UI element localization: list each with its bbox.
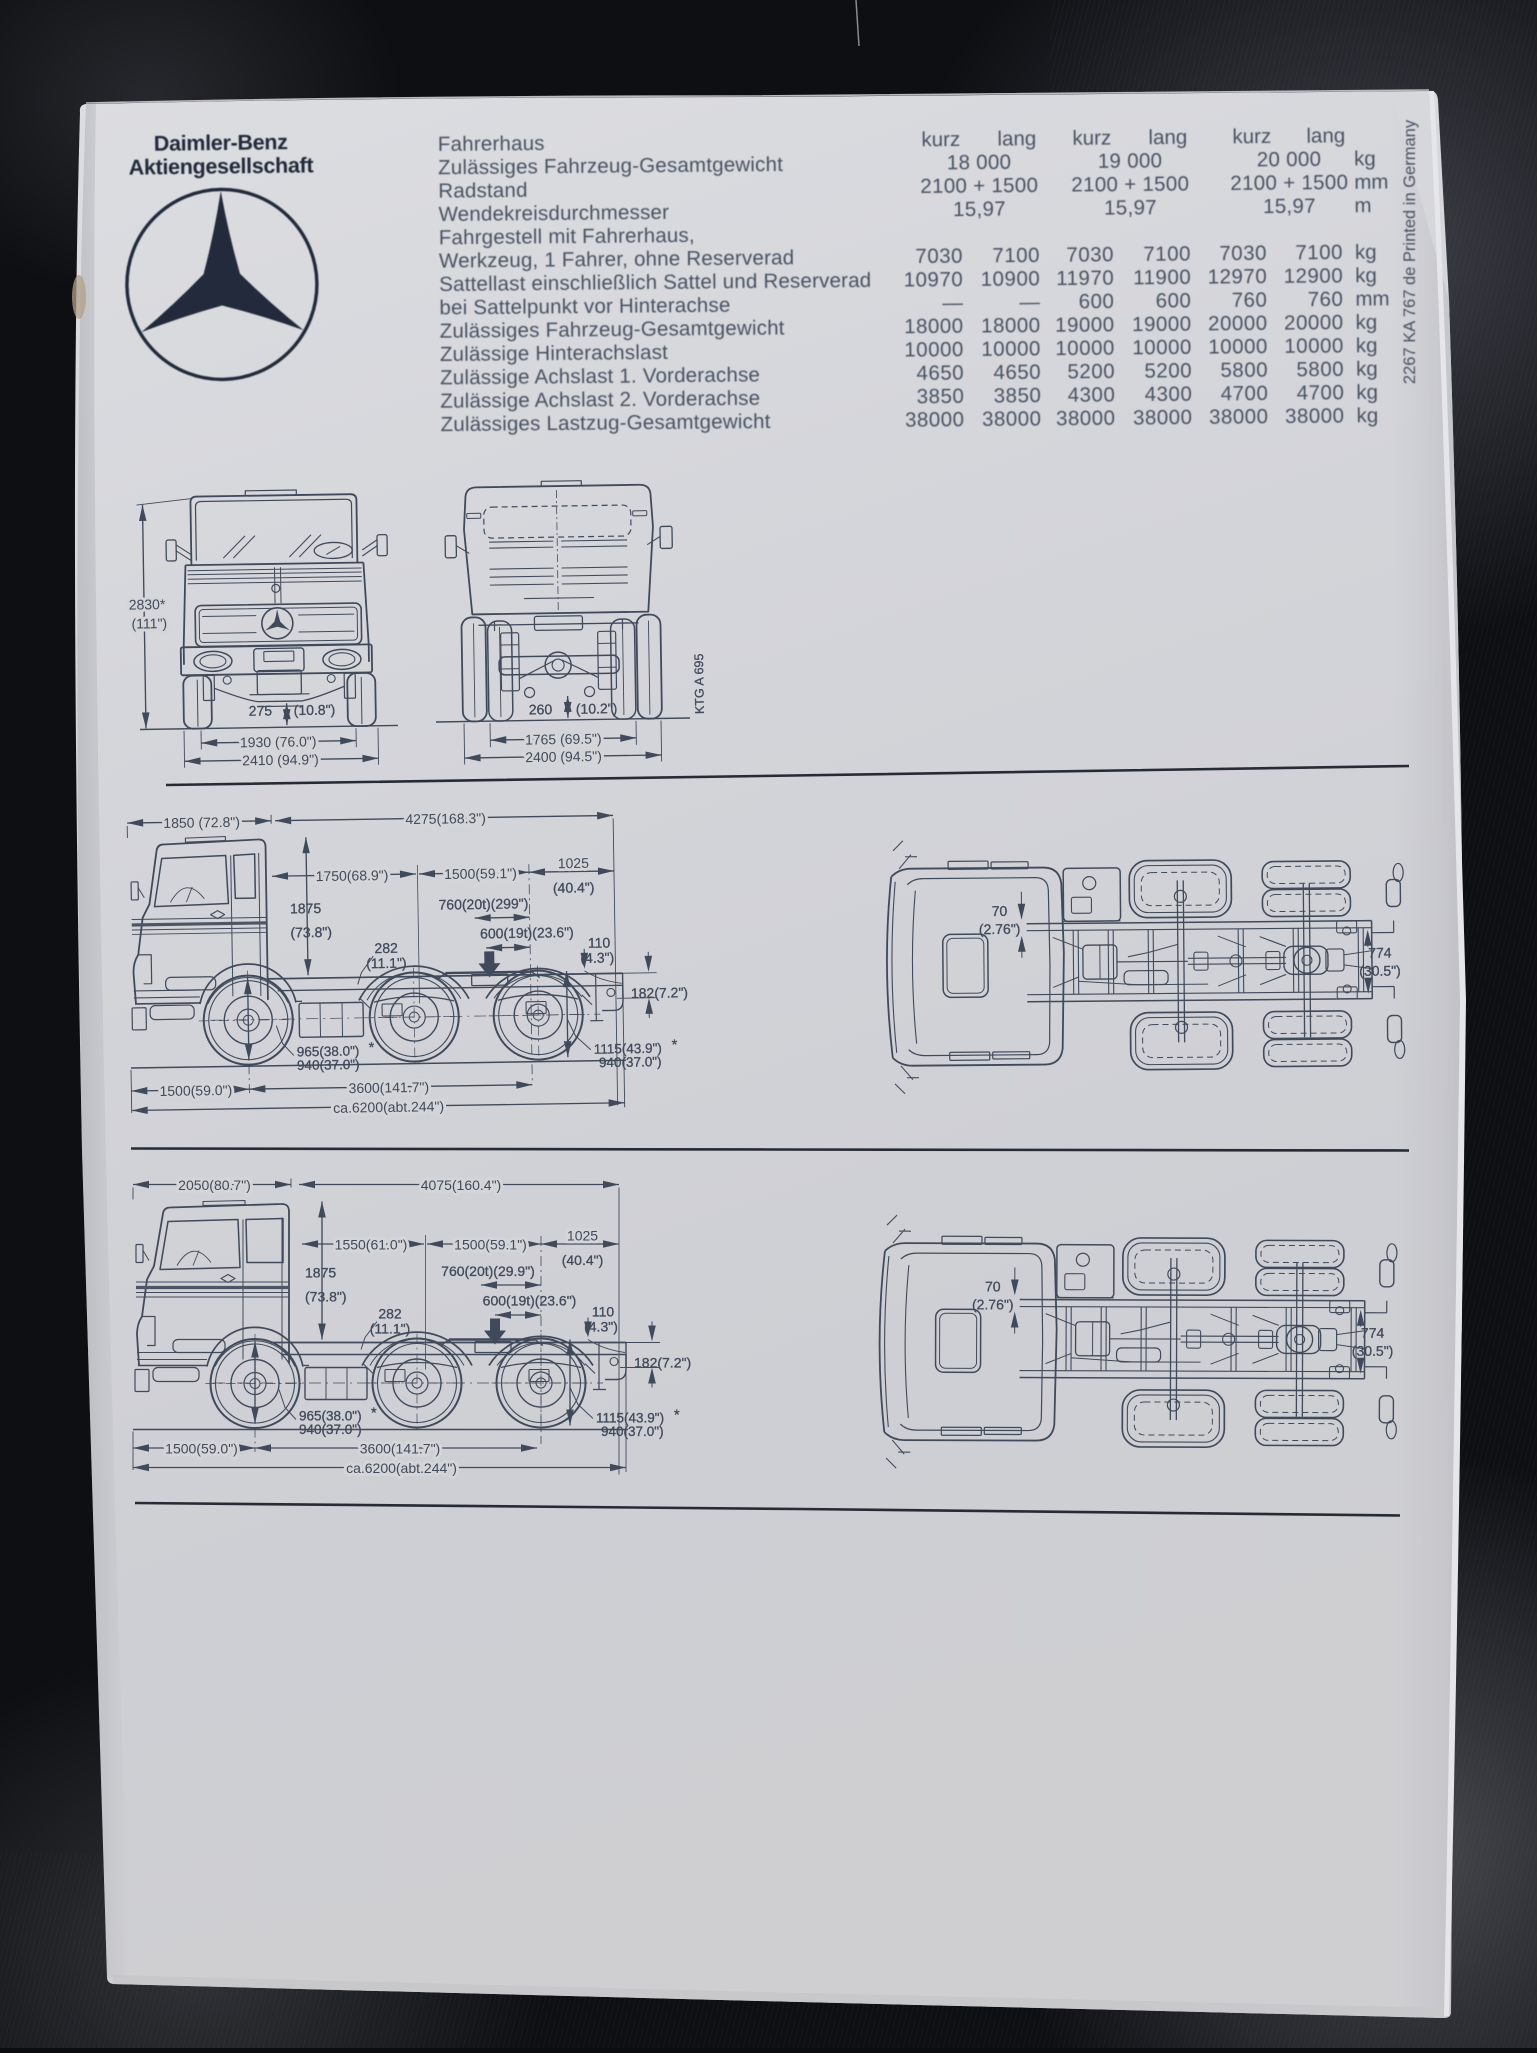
svg-text:(30.5"): (30.5") <box>1359 962 1401 978</box>
svg-text:1025: 1025 <box>567 1228 598 1244</box>
svg-text:Zulässige Achslast 1. Vorderac: Zulässige Achslast 1. Vorderachse <box>440 363 760 389</box>
svg-text:m: m <box>1354 194 1371 217</box>
svg-text:282: 282 <box>374 940 398 956</box>
svg-text:lang: lang <box>997 127 1036 150</box>
svg-text:110: 110 <box>592 1304 615 1320</box>
svg-text:19 000: 19 000 <box>1098 149 1163 173</box>
svg-text:182(7.2"): 182(7.2") <box>631 984 688 1001</box>
svg-text:lang: lang <box>1306 124 1345 147</box>
svg-text:7100: 7100 <box>1143 242 1191 265</box>
svg-text:4700: 4700 <box>1297 381 1345 404</box>
svg-text:260: 260 <box>529 701 553 717</box>
svg-text:10000: 10000 <box>1132 336 1192 360</box>
svg-text:18000: 18000 <box>981 314 1041 338</box>
svg-text:2400 (94.5"): 2400 (94.5") <box>525 748 602 765</box>
svg-text:1025: 1025 <box>558 855 590 871</box>
svg-text:mm: mm <box>1354 171 1388 194</box>
svg-text:7030: 7030 <box>1066 243 1114 266</box>
svg-text:7030: 7030 <box>1219 242 1267 265</box>
svg-text:kg: kg <box>1356 311 1378 334</box>
svg-text:12970: 12970 <box>1208 265 1268 289</box>
svg-text:Zulässiges Lastzug-Gesamtgewic: Zulässiges Lastzug-Gesamtgewicht <box>440 410 770 436</box>
svg-text:*: * <box>672 1037 678 1053</box>
svg-text:(73.8"): (73.8") <box>305 1289 347 1305</box>
svg-text:*: * <box>371 1406 377 1422</box>
svg-text:Zulässiges Fahrzeug-Gesamtgewi: Zulässiges Fahrzeug-Gesamtgewicht <box>440 316 785 342</box>
svg-text:kg: kg <box>1356 404 1378 427</box>
svg-text:600: 600 <box>1156 289 1192 312</box>
svg-text:(111"): (111") <box>131 615 167 632</box>
svg-text:Sattellast einschließlich Satt: Sattellast einschließlich Sattel und Res… <box>439 269 871 296</box>
svg-text:ca.6200(abt.244"): ca.6200(abt.244") <box>333 1098 444 1116</box>
svg-text:1500(59.1"): 1500(59.1") <box>444 865 517 882</box>
svg-text:1875: 1875 <box>290 900 322 916</box>
svg-text:5800: 5800 <box>1296 358 1344 381</box>
svg-text:—: — <box>1019 291 1040 314</box>
svg-text:38000: 38000 <box>1056 407 1116 431</box>
svg-text:2050(80.7"): 2050(80.7") <box>178 1177 251 1193</box>
svg-text:4300: 4300 <box>1145 383 1193 406</box>
svg-text:2267 KA 767 de Printed in: 2267 KA 767 de Printed in Germany <box>1401 119 1419 384</box>
svg-text:2410 (94.9"): 2410 (94.9") <box>242 751 319 768</box>
svg-text:15,97: 15,97 <box>953 198 1006 222</box>
svg-text:940(37.0"): 940(37.0") <box>297 1057 360 1073</box>
svg-text:774: 774 <box>1361 1325 1385 1341</box>
svg-text:940(37.0"): 940(37.0") <box>599 1054 662 1070</box>
svg-text:mm: mm <box>1355 287 1389 310</box>
svg-text:760(20t)(29.9"): 760(20t)(29.9") <box>441 1263 535 1279</box>
svg-text:11900: 11900 <box>1133 266 1191 290</box>
svg-text:1930 (76.0"): 1930 (76.0") <box>240 733 317 750</box>
svg-text:1500(59.1"): 1500(59.1") <box>454 1237 527 1253</box>
svg-text:3850: 3850 <box>994 384 1042 407</box>
svg-text:19000: 19000 <box>1055 313 1115 337</box>
svg-text:600(19t)(23.6"): 600(19t)(23.6") <box>480 924 574 941</box>
svg-text:110: 110 <box>588 934 611 950</box>
svg-text:10000: 10000 <box>981 337 1041 361</box>
svg-text:—: — <box>942 291 963 314</box>
svg-text:4300: 4300 <box>1068 383 1116 406</box>
svg-text:38000: 38000 <box>1285 404 1345 428</box>
svg-text:(2.76"): (2.76") <box>979 921 1021 937</box>
svg-text:Zulässige Hinterachslast: Zulässige Hinterachslast <box>440 341 668 366</box>
svg-text:KTG A 695: KTG A 695 <box>692 653 707 714</box>
svg-text:4275(168.3"): 4275(168.3") <box>405 810 486 827</box>
svg-text:kg: kg <box>1354 147 1376 170</box>
svg-text:15,97: 15,97 <box>1263 195 1316 219</box>
svg-text:Daimler-Benz: Daimler-Benz <box>154 130 288 156</box>
svg-text:38000: 38000 <box>1133 406 1193 430</box>
svg-text:kurz: kurz <box>1232 125 1271 148</box>
svg-text:Fahrgestell mit Fahrerhaus,: Fahrgestell mit Fahrerhaus, <box>439 224 695 249</box>
svg-text:18 000: 18 000 <box>947 151 1012 175</box>
svg-text:(40.4"): (40.4") <box>553 879 595 896</box>
svg-text:1875: 1875 <box>305 1265 336 1281</box>
svg-text:2100 + 1500: 2100 + 1500 <box>1230 171 1348 195</box>
svg-text:2100 + 1500: 2100 + 1500 <box>920 174 1038 198</box>
svg-text:12900: 12900 <box>1284 264 1344 288</box>
svg-text:774: 774 <box>1368 945 1392 961</box>
svg-text:760: 760 <box>1232 288 1268 311</box>
svg-text:(10.8"): (10.8") <box>294 701 336 718</box>
svg-text:ca.6200(abt.244"): ca.6200(abt.244") <box>346 1460 457 1476</box>
svg-text:Fahrerhaus: Fahrerhaus <box>438 132 545 156</box>
svg-text:*: * <box>674 1408 680 1424</box>
svg-text:bei Sattelpunkt vor Hinterachs: bei Sattelpunkt vor Hinterachse <box>439 294 730 320</box>
svg-text:Aktiengesellschaft: Aktiengesellschaft <box>129 153 314 179</box>
svg-text:2100 + 1500: 2100 + 1500 <box>1071 172 1189 196</box>
svg-text:*: * <box>369 1040 375 1056</box>
svg-text:940(37.0"): 940(37.0") <box>601 1424 664 1439</box>
svg-text:1550(61.0"): 1550(61.0") <box>335 1237 408 1253</box>
svg-text:182(7.2"): 182(7.2") <box>634 1355 691 1371</box>
svg-text:760: 760 <box>1308 288 1344 311</box>
svg-text:lang: lang <box>1148 126 1187 149</box>
svg-text:1500(59.0"): 1500(59.0") <box>159 1082 232 1099</box>
svg-text:600: 600 <box>1079 290 1115 313</box>
svg-text:38000: 38000 <box>1209 405 1269 429</box>
svg-text:Zulässiges Fahrzeug-Gesamtgewi: Zulässiges Fahrzeug-Gesamtgewicht <box>438 153 783 179</box>
svg-text:282: 282 <box>378 1306 402 1322</box>
svg-text:kg: kg <box>1355 264 1377 287</box>
svg-text:5200: 5200 <box>1144 359 1192 382</box>
svg-text:Werkzeug, 1 Fahrer, ohne Reser: Werkzeug, 1 Fahrer, ohne Reserverad <box>439 246 795 272</box>
svg-text:1500(59.0"): 1500(59.0") <box>165 1441 238 1457</box>
svg-text:5800: 5800 <box>1220 358 1268 381</box>
svg-text:(10.2"): (10.2") <box>576 700 618 717</box>
svg-text:Radstand: Radstand <box>438 179 528 203</box>
svg-text:38000: 38000 <box>982 407 1042 431</box>
svg-text:1750(68.9"): 1750(68.9") <box>316 867 389 884</box>
svg-text:18000: 18000 <box>904 315 964 339</box>
svg-text:38000: 38000 <box>905 408 965 432</box>
svg-text:15,97: 15,97 <box>1104 196 1157 220</box>
svg-text:11970: 11970 <box>1056 267 1114 291</box>
svg-text:kurz: kurz <box>1072 126 1111 149</box>
svg-text:kg: kg <box>1356 381 1378 404</box>
svg-text:(40.4"): (40.4") <box>562 1252 604 1268</box>
svg-text:(2.76"): (2.76") <box>972 1296 1014 1312</box>
svg-text:10900: 10900 <box>981 267 1041 291</box>
svg-text:10000: 10000 <box>904 338 964 362</box>
svg-text:4700: 4700 <box>1221 382 1269 405</box>
svg-text:10000: 10000 <box>1055 337 1115 361</box>
svg-text:4650: 4650 <box>916 361 964 384</box>
svg-text:3600(141.7"): 3600(141.7") <box>360 1441 440 1457</box>
svg-text:Zulässige Achslast 2. Vorderac: Zulässige Achslast 2. Vorderachse <box>440 387 760 413</box>
svg-text:2830*: 2830* <box>129 596 166 613</box>
svg-text:5200: 5200 <box>1067 360 1115 383</box>
svg-text:600(19t)(23.6"): 600(19t)(23.6") <box>483 1293 577 1309</box>
svg-text:kurz: kurz <box>921 128 960 151</box>
svg-text:20000: 20000 <box>1284 311 1344 335</box>
svg-text:19000: 19000 <box>1132 313 1192 337</box>
svg-text:20000: 20000 <box>1208 312 1268 336</box>
svg-text:kg: kg <box>1355 241 1377 264</box>
svg-text:Wendekreisdurchmesser: Wendekreisdurchmesser <box>438 201 669 226</box>
svg-text:760(20t)(299"): 760(20t)(299") <box>438 895 528 912</box>
svg-text:10970: 10970 <box>904 268 964 292</box>
svg-text:70: 70 <box>985 1278 1001 1294</box>
svg-text:(73.8"): (73.8") <box>290 924 332 941</box>
svg-text:1765 (69.5"): 1765 (69.5") <box>525 730 602 747</box>
svg-text:70: 70 <box>992 903 1008 919</box>
svg-text:4075(160.4"): 4075(160.4") <box>421 1177 501 1193</box>
svg-text:3600(141.7"): 3600(141.7") <box>348 1079 429 1096</box>
svg-text:kg: kg <box>1356 334 1378 357</box>
svg-text:20 000: 20 000 <box>1257 148 1322 172</box>
svg-text:10000: 10000 <box>1284 334 1344 358</box>
svg-text:940(37.0"): 940(37.0") <box>299 1422 362 1437</box>
svg-text:(30.5"): (30.5") <box>1352 1343 1394 1359</box>
svg-text:3850: 3850 <box>917 385 965 408</box>
svg-text:4650: 4650 <box>993 361 1041 384</box>
svg-text:kg: kg <box>1356 357 1378 380</box>
svg-text:10000: 10000 <box>1208 335 1268 359</box>
svg-text:7030: 7030 <box>915 245 963 268</box>
svg-text:7100: 7100 <box>1295 241 1343 264</box>
svg-text:275: 275 <box>249 702 273 718</box>
svg-text:7100: 7100 <box>992 244 1040 267</box>
svg-text:1850 (72.8"): 1850 (72.8") <box>163 814 240 831</box>
